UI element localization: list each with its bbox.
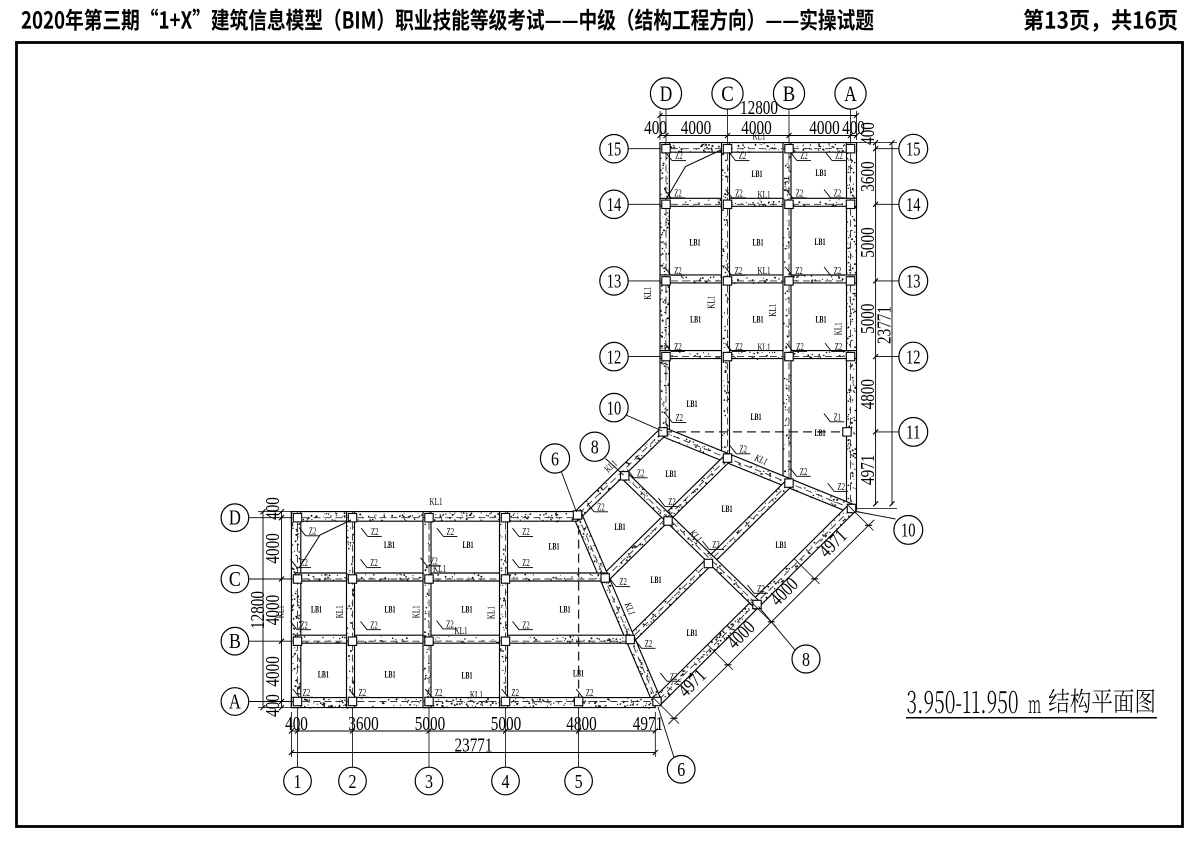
svg-text:13: 13 bbox=[607, 271, 622, 293]
svg-text:12: 12 bbox=[607, 346, 622, 368]
svg-text:3600: 3600 bbox=[858, 161, 879, 191]
svg-text:KL1: KL1 bbox=[455, 626, 468, 637]
svg-text:12: 12 bbox=[906, 346, 921, 368]
svg-text:LB1: LB1 bbox=[690, 237, 701, 247]
svg-text:A: A bbox=[229, 690, 242, 714]
svg-text:400: 400 bbox=[285, 714, 308, 735]
svg-text:KL1: KL1 bbox=[411, 605, 422, 618]
svg-text:8: 8 bbox=[802, 649, 810, 671]
svg-text:14: 14 bbox=[906, 194, 921, 216]
svg-text:C: C bbox=[721, 81, 734, 106]
svg-text:LB1: LB1 bbox=[385, 670, 396, 680]
svg-text:LB1: LB1 bbox=[816, 168, 827, 178]
svg-text:KL1: KL1 bbox=[768, 304, 779, 317]
svg-text:6: 6 bbox=[551, 448, 559, 470]
svg-text:15: 15 bbox=[607, 139, 622, 161]
svg-text:KL1: KL1 bbox=[433, 564, 446, 575]
svg-text:LB1: LB1 bbox=[463, 540, 474, 550]
svg-text:2: 2 bbox=[349, 771, 357, 793]
svg-text:KL1: KL1 bbox=[643, 287, 654, 300]
svg-text:D: D bbox=[229, 506, 241, 530]
svg-text:LB1: LB1 bbox=[816, 314, 827, 324]
svg-text:4971: 4971 bbox=[858, 455, 879, 485]
svg-text:4: 4 bbox=[502, 771, 510, 793]
svg-text:KL1: KL1 bbox=[335, 605, 346, 618]
svg-text:LB1: LB1 bbox=[615, 522, 626, 532]
svg-text:LB1: LB1 bbox=[753, 237, 764, 247]
svg-text:4000: 4000 bbox=[263, 656, 284, 686]
svg-text:10: 10 bbox=[901, 520, 916, 542]
svg-text:LB1: LB1 bbox=[687, 399, 698, 409]
svg-text:1: 1 bbox=[294, 771, 302, 793]
svg-text:KL1: KL1 bbox=[758, 266, 771, 277]
svg-text:LB1: LB1 bbox=[776, 540, 787, 550]
svg-text:14: 14 bbox=[607, 194, 622, 216]
svg-text:LB1: LB1 bbox=[722, 504, 733, 514]
svg-text:4971: 4971 bbox=[633, 714, 663, 735]
svg-text:5000: 5000 bbox=[415, 714, 445, 735]
svg-text:LB1: LB1 bbox=[815, 237, 826, 247]
svg-text:KL1: KL1 bbox=[486, 606, 497, 619]
svg-text:LB1: LB1 bbox=[751, 412, 762, 422]
svg-text:5000: 5000 bbox=[858, 227, 879, 257]
svg-text:11: 11 bbox=[906, 422, 921, 444]
svg-text:LB1: LB1 bbox=[385, 605, 396, 615]
svg-text:C: C bbox=[229, 567, 241, 591]
svg-text:23771: 23771 bbox=[455, 736, 493, 757]
svg-text:LB1: LB1 bbox=[752, 169, 763, 179]
svg-text:4000: 4000 bbox=[809, 118, 839, 139]
svg-text:LB1: LB1 bbox=[753, 314, 764, 324]
svg-text:LB1: LB1 bbox=[311, 604, 322, 614]
svg-text:6: 6 bbox=[677, 759, 685, 781]
svg-text:400: 400 bbox=[858, 122, 879, 145]
svg-text:KL1: KL1 bbox=[470, 690, 483, 701]
svg-text:KL1: KL1 bbox=[834, 322, 845, 335]
svg-text:5000: 5000 bbox=[491, 714, 521, 735]
svg-text:LB1: LB1 bbox=[549, 541, 560, 551]
svg-text:LB1: LB1 bbox=[462, 605, 473, 615]
svg-text:4800: 4800 bbox=[566, 714, 596, 735]
svg-text:KL1: KL1 bbox=[758, 190, 771, 201]
svg-text:LB1: LB1 bbox=[462, 670, 473, 680]
svg-text:10: 10 bbox=[607, 397, 622, 419]
svg-text:400: 400 bbox=[263, 694, 284, 717]
svg-text:12800: 12800 bbox=[740, 98, 778, 119]
svg-text:B: B bbox=[783, 81, 796, 106]
svg-text:4000: 4000 bbox=[263, 533, 284, 563]
svg-text:B: B bbox=[229, 629, 241, 653]
svg-text:D: D bbox=[660, 81, 673, 106]
svg-text:LB1: LB1 bbox=[687, 628, 698, 638]
svg-text:4000: 4000 bbox=[741, 118, 771, 139]
svg-text:LB1: LB1 bbox=[573, 669, 584, 679]
svg-text:LB1: LB1 bbox=[384, 540, 395, 550]
svg-text:400: 400 bbox=[644, 118, 667, 139]
svg-text:KL1: KL1 bbox=[430, 497, 443, 508]
svg-text:LB1: LB1 bbox=[690, 314, 701, 324]
svg-text:400: 400 bbox=[263, 497, 284, 520]
svg-text:LB1: LB1 bbox=[318, 670, 329, 680]
svg-text:15: 15 bbox=[906, 139, 921, 161]
svg-text:LB1: LB1 bbox=[666, 469, 677, 479]
svg-text:3: 3 bbox=[425, 771, 433, 793]
svg-text:KL1: KL1 bbox=[707, 296, 718, 309]
svg-text:5: 5 bbox=[575, 771, 583, 793]
svg-text:LB1: LB1 bbox=[815, 428, 826, 438]
svg-text:A: A bbox=[844, 81, 857, 106]
svg-text:23771: 23771 bbox=[874, 306, 895, 344]
svg-text:8: 8 bbox=[591, 437, 599, 459]
svg-text:LB1: LB1 bbox=[560, 604, 571, 614]
svg-text:4000: 4000 bbox=[263, 595, 284, 625]
svg-text:KL1: KL1 bbox=[758, 342, 771, 353]
svg-text:4800: 4800 bbox=[858, 379, 879, 409]
svg-text:13: 13 bbox=[906, 271, 921, 293]
svg-text:4000: 4000 bbox=[681, 118, 711, 139]
svg-text:LB1: LB1 bbox=[651, 575, 662, 585]
